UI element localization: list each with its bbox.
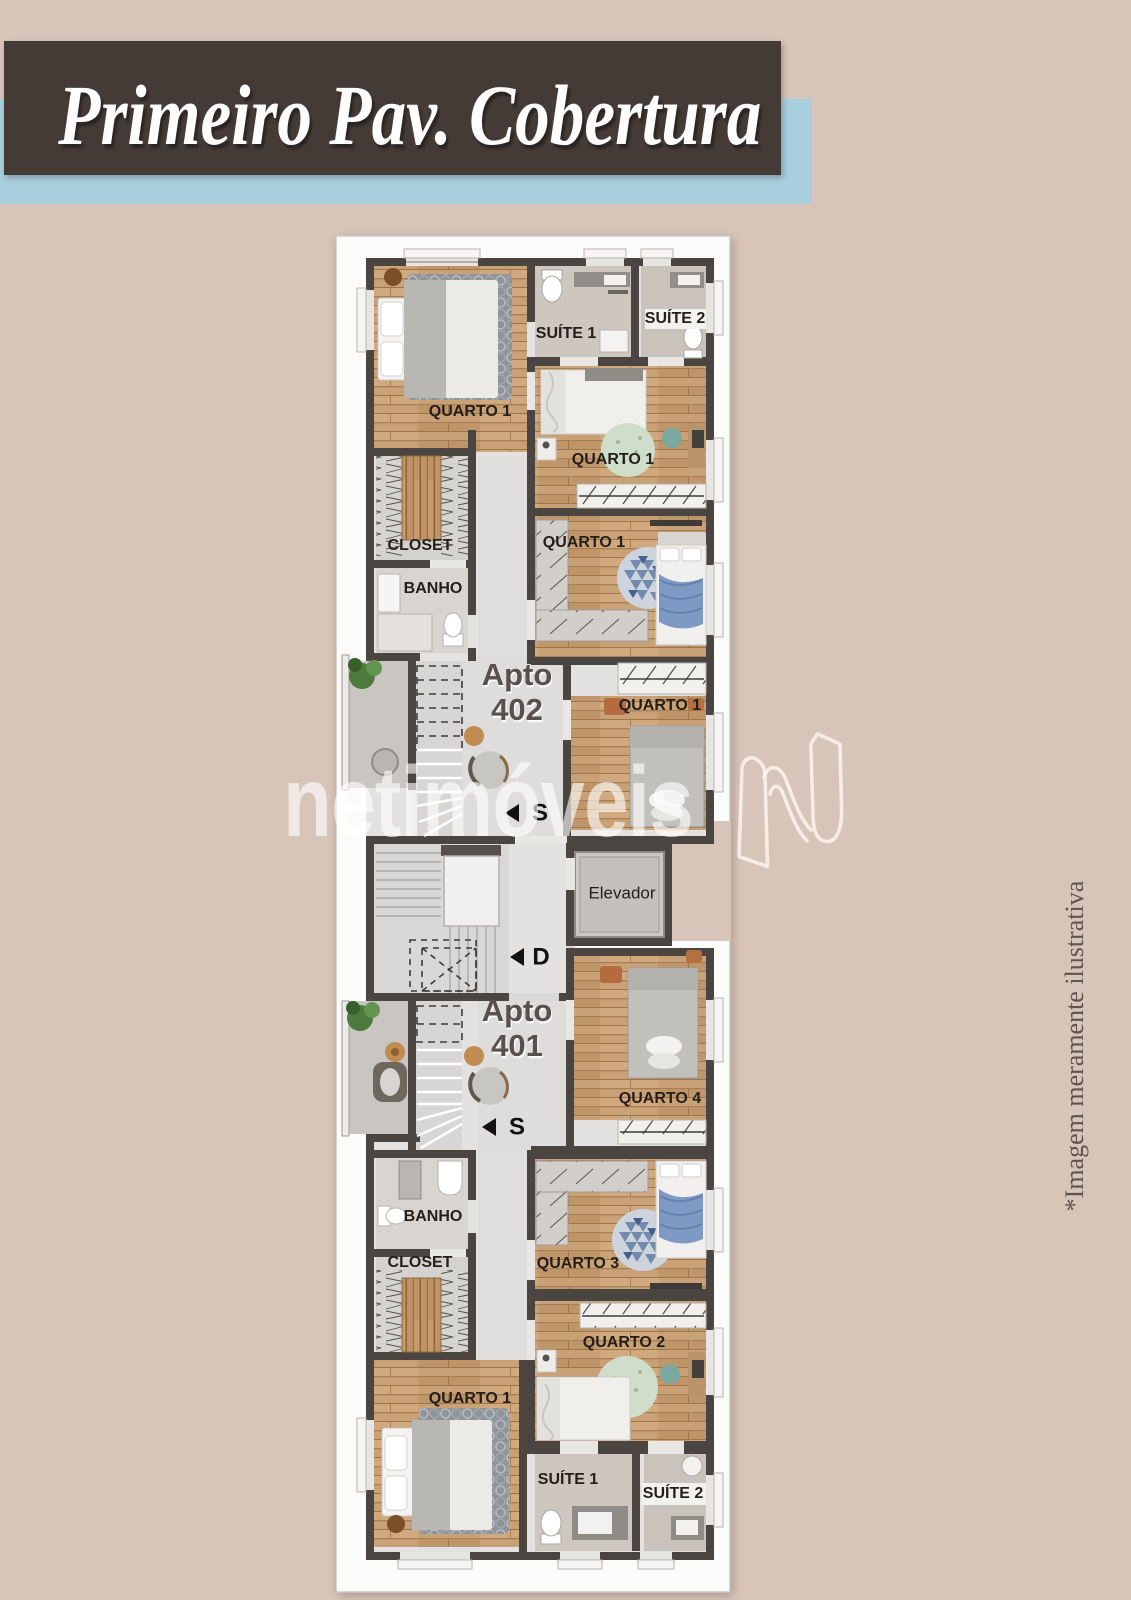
svg-text:SUÍTE 1: SUÍTE 1 — [536, 323, 597, 342]
svg-text:401: 401 — [491, 1028, 543, 1063]
svg-text:SUÍTE 2: SUÍTE 2 — [643, 1483, 704, 1502]
svg-text:BANHO: BANHO — [404, 580, 463, 597]
svg-text:402: 402 — [491, 692, 543, 727]
svg-text:QUARTO 1: QUARTO 1 — [429, 403, 511, 420]
svg-text:QUARTO 4: QUARTO 4 — [619, 1090, 701, 1107]
svg-text:Apto: Apto — [482, 657, 553, 692]
svg-text:Apto: Apto — [482, 993, 553, 1028]
svg-text:QUARTO 3: QUARTO 3 — [537, 1255, 619, 1272]
svg-text:QUARTO 1: QUARTO 1 — [543, 534, 625, 551]
svg-text:CLOSET: CLOSET — [388, 1254, 453, 1271]
svg-text:CLOSET: CLOSET — [388, 537, 453, 554]
svg-text:QUARTO 2: QUARTO 2 — [583, 1334, 665, 1351]
svg-text:Elevador: Elevador — [588, 883, 655, 902]
svg-text:D: D — [532, 943, 549, 970]
svg-text:SUÍTE 2: SUÍTE 2 — [645, 308, 706, 327]
svg-text:S: S — [532, 799, 548, 826]
svg-text:SUÍTE 1: SUÍTE 1 — [538, 1469, 599, 1488]
svg-text:S: S — [509, 1113, 525, 1140]
svg-text:BANHO: BANHO — [404, 1208, 463, 1225]
svg-text:QUARTO 1: QUARTO 1 — [572, 451, 654, 468]
svg-text:QUARTO 1: QUARTO 1 — [429, 1390, 511, 1407]
svg-text:QUARTO 1: QUARTO 1 — [619, 697, 701, 714]
